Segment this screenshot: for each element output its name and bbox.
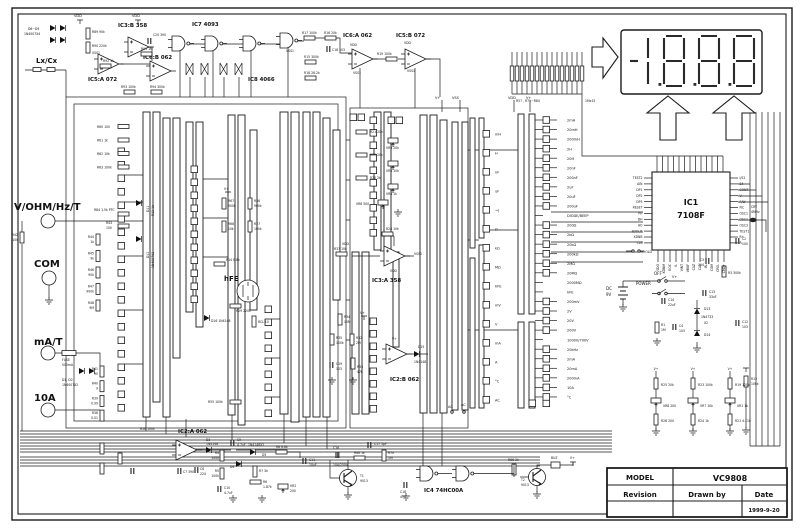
c19-value: 103 xyxy=(336,367,342,371)
ic1-left-pin: SDOUT xyxy=(632,229,652,233)
pin-label: R+ xyxy=(740,235,745,239)
r60-resistor: R60 100 xyxy=(97,125,129,130)
resistor-icon xyxy=(350,334,354,345)
contact-square xyxy=(118,175,125,182)
pin-label: F/W xyxy=(740,200,746,204)
c8-label: C8 xyxy=(200,467,204,471)
ic1-bottom-pin: V- xyxy=(674,250,678,267)
range-row: 2mA xyxy=(535,355,576,362)
contact-square xyxy=(370,180,377,187)
d13-label: D13 xyxy=(704,307,710,311)
wafer-unit-label: hFE xyxy=(495,285,501,289)
pin-label: IN- xyxy=(704,264,708,268)
contact-square xyxy=(265,410,272,417)
d15-part: 1N4148 xyxy=(414,360,426,364)
pin-label: CA2 xyxy=(698,264,702,270)
resistor-icon xyxy=(655,322,659,333)
c11-label: C11 xyxy=(309,458,315,462)
ground-icon xyxy=(693,345,701,352)
r17-label: R17 100k xyxy=(302,31,317,35)
r91-label: R91 1M xyxy=(141,47,153,51)
ic3a-label: IC3:A 358 xyxy=(372,278,401,284)
contact-square xyxy=(370,356,377,363)
resistor-label: R23 100k xyxy=(698,383,713,387)
digit-eight xyxy=(659,36,685,86)
ic3b-label: IC3:B 358 xyxy=(118,23,147,29)
r90-label: R90 220k xyxy=(92,44,107,48)
contact-square xyxy=(118,297,125,304)
resistor-icon xyxy=(248,198,252,209)
crystal-icon xyxy=(750,218,757,222)
power-switch-contact xyxy=(665,292,668,295)
resistor-label: R60 100 xyxy=(97,125,110,129)
range-row: 2uF xyxy=(535,184,573,191)
vplus-label: V+ xyxy=(360,311,365,315)
vplus-label: V+ xyxy=(224,187,229,191)
vplus-label: V+ xyxy=(570,456,575,460)
ic7-label: IC7 4093 xyxy=(192,22,219,28)
vss1-label: VSS1 xyxy=(286,49,294,53)
ac-label: AC xyxy=(448,405,453,409)
wafer-unit: AC xyxy=(483,397,500,404)
capacitor-icon xyxy=(706,258,709,264)
vr2-trimmer-icon xyxy=(278,484,288,493)
r16-label: R16 20k xyxy=(324,31,337,35)
10a-terminal xyxy=(41,403,55,417)
resistor-icon xyxy=(100,443,104,454)
r70-label: R70 xyxy=(388,451,394,455)
wafer-unit-label: A xyxy=(495,361,498,365)
wafer-unit-label: MΩ xyxy=(495,266,501,270)
range-row: 2MΩ xyxy=(535,260,575,267)
contact-square xyxy=(370,393,377,400)
pin-label: CLK xyxy=(637,241,644,245)
range-row: 20mA xyxy=(535,365,578,372)
ic1-bottom-pin: COM xyxy=(710,250,714,271)
vplus-label: V+ xyxy=(691,367,696,371)
shunt-resistor: R38 0.01 xyxy=(91,410,104,421)
resistor-value: 0.99 xyxy=(91,401,98,405)
range-label: 20kΩ xyxy=(567,243,576,247)
r4-value: 100k xyxy=(211,456,219,460)
r12-label: R12 1k xyxy=(151,205,155,216)
contact-square xyxy=(370,343,377,350)
pin-label: DP2 xyxy=(636,194,642,198)
title-block: MODEL VC9808 Revision Drawn by Date 1999… xyxy=(607,468,787,517)
vohm-terminal-label: V/OHM/Hz/T xyxy=(14,202,81,213)
resistor-icon xyxy=(325,36,336,40)
trimmer-chain: V+ R23 100k VR7 10k R24 1k xyxy=(688,367,713,435)
contact-square xyxy=(191,192,198,199)
ic1-bottom-pin: EOC xyxy=(668,250,672,271)
ic1-right-pin: OSC3 xyxy=(730,223,748,227)
ic6b-opamp-icon xyxy=(146,61,176,81)
trimmer-label: VR7 10k xyxy=(700,404,713,408)
resistor-icon xyxy=(338,314,342,325)
contact-square xyxy=(118,229,125,236)
range-label: 1000V/700V xyxy=(567,338,589,342)
d15-label: D15 xyxy=(418,345,424,349)
c9-value: 4.7uF xyxy=(237,443,246,447)
range-row: 200nF xyxy=(535,174,578,181)
range-row: 20H xyxy=(535,155,574,162)
capacitor-icon xyxy=(673,324,676,330)
vss1-label: VSS1 xyxy=(414,252,422,256)
resistor-value: 90k xyxy=(88,273,94,277)
range-label: 20V xyxy=(567,319,574,323)
resistor-label: R63 100k xyxy=(97,166,112,170)
nand-gate-icon xyxy=(416,466,442,481)
range-row: 2V xyxy=(535,308,572,315)
resistor-ref: R48 xyxy=(88,301,94,305)
resistor-icon xyxy=(386,57,397,61)
analog-switch-icon xyxy=(201,63,208,75)
c11-value: 10uF xyxy=(309,463,317,467)
r15-label: R15 300k xyxy=(304,55,319,59)
r56-label: R56 100k xyxy=(140,427,155,431)
wafer-unit: kΩ xyxy=(483,245,500,252)
c12-value: 103 xyxy=(742,325,748,329)
analog-switch-icon xyxy=(235,63,242,75)
vdd-label: VDD xyxy=(74,14,82,18)
ic1-left-pin: XDNB xyxy=(634,235,652,239)
schematic-vc9808: 2mH 20mH 200mH 2H 20H 20nF 200nF xyxy=(0,0,800,528)
contact-square xyxy=(191,218,198,225)
r55-label: R55 100k xyxy=(208,400,223,404)
r42-label: R42 xyxy=(12,233,18,237)
power-label: POWER xyxy=(636,281,651,286)
pin-label: SDO xyxy=(656,263,660,270)
t1-transistor-icon xyxy=(340,470,357,487)
resistor-ref: R46 xyxy=(88,268,94,272)
r36-value: 900k xyxy=(254,204,262,208)
shunt-resistor: R40 9 xyxy=(92,381,104,392)
wafer-unit: MΩ xyxy=(483,264,501,271)
contact-square xyxy=(265,384,272,391)
contact-square xyxy=(191,283,198,290)
contact-square xyxy=(370,331,377,338)
resistor-icon xyxy=(141,52,152,56)
resistor-icon xyxy=(100,64,111,68)
c3-label: C3 xyxy=(700,258,704,262)
pin-label: PH xyxy=(638,212,643,216)
r28-label: R28 10k xyxy=(386,227,399,231)
ic1-bottom-pin: CRD+ xyxy=(722,250,726,273)
range-row: 200uF xyxy=(535,203,578,210)
ic1-right-pin: R+ xyxy=(730,235,745,239)
contact-square xyxy=(118,364,125,371)
amp-section: R28 10k R37 10k VDD VDD VSS1 IC3:A 358 R… xyxy=(328,227,428,384)
resistor-icon xyxy=(220,450,224,461)
range-row: 200mA xyxy=(535,375,580,382)
capacitor-icon xyxy=(195,467,198,473)
r12b-value: 100k xyxy=(751,382,759,386)
ic6a-opamp-icon xyxy=(348,49,378,69)
r1-label: R1 xyxy=(661,323,665,327)
range-row: 200kΩ xyxy=(535,250,579,257)
vdd-symbol-icon xyxy=(77,20,83,24)
pin-label: R- xyxy=(740,241,743,245)
divider-resistor: R48 9M xyxy=(88,300,100,311)
contact-square xyxy=(191,296,198,303)
shunt-resistor: R39 0.99 xyxy=(91,395,104,406)
range-label: 200nF xyxy=(567,176,578,180)
c19-label: C19 xyxy=(336,362,342,366)
resistor-value: 90 xyxy=(94,372,98,376)
resistor-icon xyxy=(222,221,226,232)
pin-label: KDNM xyxy=(662,264,666,274)
vr2-value: 200 xyxy=(290,489,296,493)
resistor-icon xyxy=(118,212,129,216)
zener-qty: X2 xyxy=(704,321,708,325)
ic4-label: IC4 74HC00A xyxy=(424,488,464,494)
resistor-icon xyxy=(382,450,386,461)
date-label: Date xyxy=(755,491,774,499)
pin-label: VINT xyxy=(680,264,684,271)
range-label: 20H xyxy=(567,157,574,161)
range-label: 20MΩ xyxy=(567,271,577,275)
diode-icon xyxy=(60,37,66,43)
contact-square xyxy=(265,397,272,404)
contact-square xyxy=(191,179,198,186)
ic1-right-pin: I/S1 xyxy=(730,176,745,180)
battery-dc-label: DC xyxy=(606,286,612,291)
resistor-icon xyxy=(124,90,135,94)
contact-square xyxy=(265,371,272,378)
capacitor-icon xyxy=(218,486,221,492)
c14-label: C14 xyxy=(668,298,674,302)
r92-label: R92 1k xyxy=(103,59,114,63)
range-row: °C xyxy=(535,394,572,401)
vss-label: VSS xyxy=(452,96,460,100)
r68-label: R68 xyxy=(228,222,234,226)
ic1-bottom-pin: VINT xyxy=(680,250,684,271)
d3-part: 1N4148 xyxy=(206,442,218,446)
pin-label: DP3 xyxy=(636,200,642,204)
vplus-symbol-icon xyxy=(743,368,749,372)
ground-icon xyxy=(229,495,237,502)
contact-square xyxy=(370,167,377,174)
d11-label: D11 xyxy=(146,206,150,212)
c13-value: 33uF xyxy=(709,295,717,299)
contact-square xyxy=(118,202,125,209)
contact-square xyxy=(370,406,377,413)
wafer-unit-label: uF xyxy=(495,190,499,194)
c16-value: 104/250V xyxy=(333,463,349,467)
contact-square xyxy=(118,337,125,344)
resistor-label: R21 4.11k xyxy=(735,419,751,423)
r33-value: 47k xyxy=(357,370,363,374)
ic1-left-pin: TEST2 xyxy=(632,176,652,180)
pin-label: I/S1 xyxy=(740,176,746,180)
range-label: 200V xyxy=(567,329,577,333)
digit-eight xyxy=(694,36,720,86)
range-row: 200Ω xyxy=(535,222,577,229)
pin-label: COM xyxy=(710,264,714,272)
r4-label: R4 xyxy=(215,451,219,455)
range-label: DIODE/BEEP xyxy=(567,214,589,218)
pin-label: AIN xyxy=(637,182,643,186)
resistor-label: R19 120k xyxy=(735,383,750,387)
contact-square xyxy=(191,205,198,212)
r42-value: 10k xyxy=(12,238,18,242)
resistor-icon xyxy=(305,60,316,64)
range-label: 200uF xyxy=(567,205,578,209)
oscillator-section: D6~D9 1N4007X4 VDD VDD R89 90k R90 220k … xyxy=(24,14,531,100)
ic1-right-pin: OSC2 xyxy=(730,218,748,222)
ic1-left-pin: RESET xyxy=(633,206,652,210)
range-row: hFE xyxy=(535,291,573,295)
range-label: 20mA xyxy=(567,367,578,371)
fuse-icon xyxy=(62,351,76,356)
resistor-ref: R39 xyxy=(92,396,98,400)
contact-square xyxy=(370,205,377,212)
pin-label: CAZ xyxy=(692,264,696,270)
resistor-ref: R38 xyxy=(92,411,98,415)
resistor-value: 9M xyxy=(89,306,94,310)
resistor-label: R24 1k xyxy=(698,419,709,423)
wafer-unit-label: H xyxy=(495,152,498,156)
r36-label: R36 xyxy=(254,199,260,203)
rcl-label: RCL 10 xyxy=(258,320,269,324)
contact-square xyxy=(118,256,125,263)
power-switch-contact xyxy=(665,280,668,283)
contact-square xyxy=(370,368,377,375)
ic2b-label: IC2:B 062 xyxy=(390,377,419,383)
pin-label: SDOUT xyxy=(632,229,643,233)
ic1-bottom-pin: IN- xyxy=(704,250,708,268)
r34-value: 10M xyxy=(344,320,351,324)
contact-square xyxy=(191,257,198,264)
contact-square xyxy=(118,283,125,290)
wafer-unit: A xyxy=(483,359,498,366)
ic1-right-pin: S4 xyxy=(730,182,743,186)
off-label: OFF xyxy=(654,271,662,276)
resistor-ref: R44 xyxy=(88,235,94,239)
ic8-label: IC8 4066 xyxy=(248,77,275,83)
r27-label: R27 xyxy=(254,222,260,226)
range-label: 20kHz xyxy=(567,348,578,352)
resistor-icon xyxy=(86,42,90,53)
range-label: 2uF xyxy=(567,185,573,189)
diode-icon xyxy=(136,200,142,206)
contact-square xyxy=(118,270,125,277)
r7-label: R7 3k xyxy=(259,469,268,473)
range-row: 20nF xyxy=(535,164,576,171)
range-row: 20kHz xyxy=(535,346,578,353)
wafer-unit: →| xyxy=(483,207,499,214)
diode-icon xyxy=(250,449,256,455)
resistor-icon xyxy=(252,316,256,327)
range-row: 2H xyxy=(535,145,572,152)
r70-value: 1M xyxy=(388,456,393,460)
pin-label: CRD- xyxy=(716,264,720,272)
pin-label: S4 xyxy=(740,182,744,186)
ic1-left-pin: PH xyxy=(638,212,652,216)
ic1-bottom-pin: CAZ xyxy=(692,250,696,270)
c18-value: 473 xyxy=(400,495,406,499)
contact-square xyxy=(118,324,125,331)
resistor-value: 9 xyxy=(96,387,98,391)
pin-label: DH xyxy=(638,218,643,222)
power-section: POWER OFF V+ DC 9V C14 22uF C13 33uF R1 … xyxy=(606,271,759,435)
wafer-unit: uF xyxy=(483,188,499,195)
segment-resistor-array: R57 , R71~R84 1Mx15 xyxy=(510,52,595,103)
contact-square xyxy=(191,231,198,238)
vdd-label: VDD xyxy=(350,43,357,47)
trimmer-label: VR5 10k xyxy=(386,169,399,173)
contact-square xyxy=(265,306,272,313)
range-label: 200mH xyxy=(567,138,580,142)
contact-square xyxy=(191,166,198,173)
vplus-label: V+ xyxy=(435,96,440,100)
resistor-value: 0.01 xyxy=(91,416,98,420)
contact-square xyxy=(265,358,272,365)
r32-value: 2M xyxy=(356,341,361,345)
r5-value: 100k xyxy=(211,474,219,478)
input-terminals: V/OHM/Hz/T COM mA/T 10A R42 10k R84 1.5k… xyxy=(12,125,155,422)
vr6-label: VR6 500 xyxy=(356,202,369,206)
contact-square xyxy=(118,243,125,250)
model-value: VC9808 xyxy=(713,474,748,483)
r43-value: 100 xyxy=(106,226,112,230)
capacitor-icon xyxy=(662,298,665,304)
resistor-icon xyxy=(305,76,316,80)
ic5b-opamp-icon xyxy=(401,49,431,69)
ic1-bottom-pin: SDO xyxy=(656,250,660,271)
resistor-ref: R47 xyxy=(88,285,94,289)
ic1-right-pin: NC xyxy=(730,206,744,210)
c17-label: C17 5pF xyxy=(374,442,387,446)
r33-label: R33 xyxy=(357,365,363,369)
ic1-bottom-pin: KDNM xyxy=(662,250,666,273)
c2-value: 100 xyxy=(742,242,748,246)
r35-value: 100k xyxy=(336,341,344,345)
range-row: 20mH xyxy=(535,126,578,133)
pin-label: V- xyxy=(740,194,743,198)
c12-label: C12 xyxy=(742,320,748,324)
resistor-icon xyxy=(86,28,90,39)
ic1-left-pin: DP1 xyxy=(636,188,652,192)
r3-label: R3 300k xyxy=(728,271,741,275)
crystal-label: CRY xyxy=(751,205,757,209)
resistor-value: 1k xyxy=(90,240,94,244)
vr2-label: VR2 xyxy=(290,484,296,488)
ic1-right-pin: OSC1 xyxy=(730,212,748,216)
c10-label: C10 xyxy=(224,486,230,490)
diode-icon xyxy=(50,37,56,43)
pin-label: DP1 xyxy=(636,188,642,192)
vss1-label: VSS1 xyxy=(407,69,415,73)
contact-square xyxy=(191,270,198,277)
wafer-unit-label: nF xyxy=(495,171,499,175)
resistor-icon xyxy=(230,304,241,308)
r60-resistor: R61 1k xyxy=(97,138,129,143)
r19-label: R19 100k xyxy=(377,52,392,56)
c14-value: 22uF xyxy=(668,303,676,307)
range-row: 10A xyxy=(535,384,574,391)
range-row: 20V xyxy=(535,317,574,324)
pin-label: OSC3 xyxy=(740,223,749,227)
ground-icon xyxy=(344,492,352,499)
r35-label: R35 xyxy=(336,336,342,340)
pin-label: HO xyxy=(638,223,643,227)
resistor-icon xyxy=(222,198,226,209)
diode-icon xyxy=(50,25,56,31)
vdd-label: VDD xyxy=(508,96,516,100)
contact-square xyxy=(370,230,377,237)
diode-icon xyxy=(414,351,420,357)
